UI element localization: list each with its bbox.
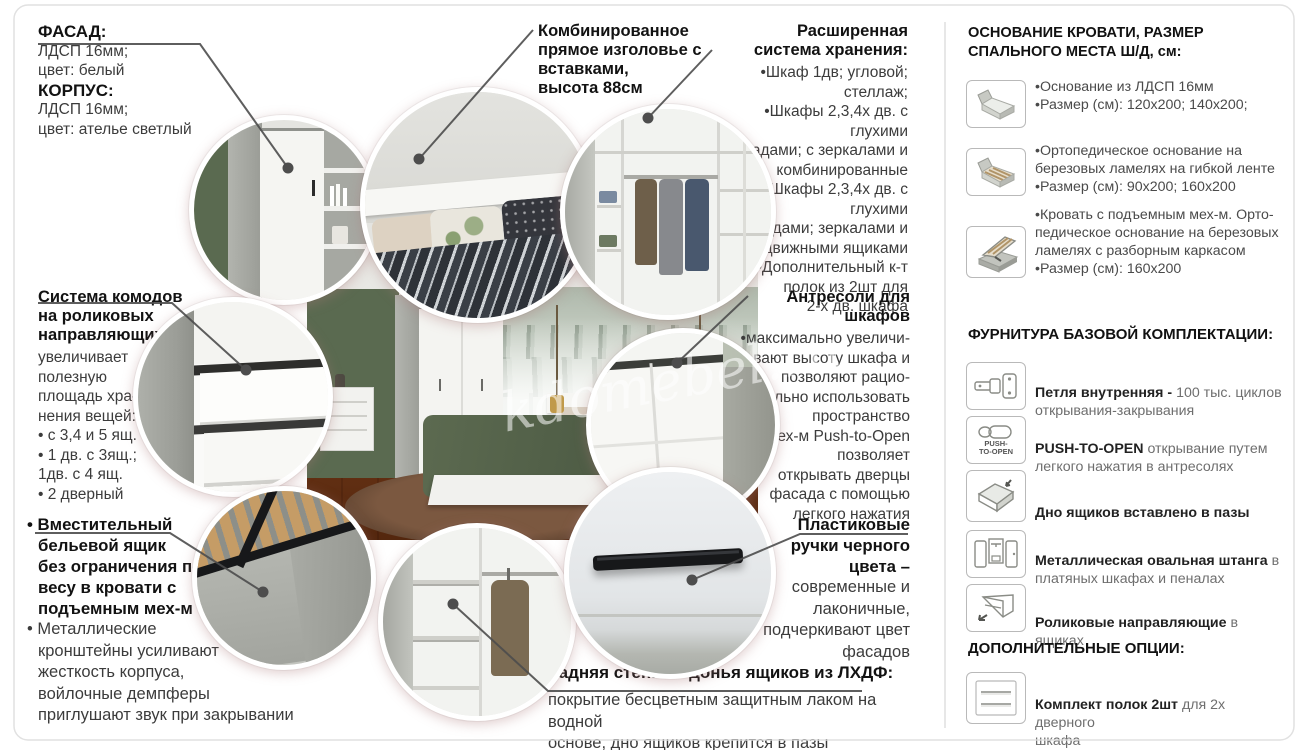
fittings-heading: ФУРНИТУРА БАЗОВОЙ КОМПЛЕКТАЦИИ:: [968, 326, 1278, 345]
bed-lift-icon: [966, 226, 1026, 278]
drawer-bottom-text: Дно ящиков вставлено в пазы: [1035, 486, 1287, 522]
circle-black-handle: [564, 467, 776, 679]
back-panel-note: Задняя стенка и донья ящиков из ЛХДФ: по…: [548, 662, 928, 750]
bed-slats-text: •Ортопедическое основание на березовых л…: [1035, 142, 1287, 196]
photo-pendant-lamp: [550, 395, 564, 413]
storage-heading: Расширенная система хранения:: [704, 22, 908, 60]
roller-guides-bold: Роликовые направляющие: [1035, 615, 1230, 631]
options-heading: ДОПОЛНИТЕЛЬНЫЕ ОПЦИИ:: [968, 640, 1278, 659]
push-to-open-bold: PUSH-TO-OPEN: [1035, 441, 1147, 457]
drawer-bottom-bold: Дно ящиков вставлено в пазы: [1035, 505, 1250, 521]
bed-base-heading: ОСНОВАНИЕ КРОВАТИ, РАЗМЕР СПАЛЬНОГО МЕСТ…: [968, 24, 1268, 61]
circle-drawers-open: [133, 297, 333, 497]
bed-base-text: •Основание из ЛДСП 16мм •Размер (см): 12…: [1035, 78, 1287, 114]
drawer-bottom-icon: [966, 470, 1026, 522]
headboard-note: Комбинированное прямое изголовье с встав…: [538, 22, 718, 98]
push-to-open-icon: PUSH- TO-OPEN: [966, 416, 1026, 464]
wardrobe-rail-icon: [966, 530, 1026, 578]
product-infographic-page: ФАСАД: ЛДСП 16мм; цвет: белый КОРПУС: ЛД…: [0, 0, 1302, 750]
bed-lift-text: •Кровать с подъемным мех-м. Орто- педиче…: [1035, 206, 1293, 278]
back-panel-body: покрытие бесцветным защитным лаком на во…: [548, 690, 928, 750]
roller-guides-icon: [966, 584, 1026, 632]
wardrobe-rail-text: Металлическая овальная штанга в платяных…: [1035, 534, 1287, 588]
shelf-set-bold: Комплект полок 2шт: [1035, 697, 1182, 713]
circle-open-wardrobe: [560, 104, 776, 320]
shelf-set-text: Комплект полок 2шт для 2х дверного шкафа: [1035, 678, 1287, 750]
shelf-set-icon: [966, 672, 1026, 724]
bed-base-icon: [966, 80, 1026, 128]
circle-wardrobe-fronts: [189, 115, 379, 305]
hinge-icon: [966, 362, 1026, 410]
hinge-text: Петля внутренняя - 100 тыс. циклов откры…: [1035, 366, 1287, 420]
push-to-open-icon-label: PUSH- TO-OPEN: [979, 440, 1013, 456]
bed-slats-icon: [966, 148, 1026, 196]
korpus-heading: КОРПУС:: [38, 81, 248, 101]
circle-wardrobe-interior: [378, 523, 576, 721]
facade-heading: ФАСАД:: [38, 22, 248, 42]
photo-pendant-cord: [556, 305, 558, 397]
hinge-bold: Петля внутренняя -: [1035, 385, 1176, 401]
facade-body: ЛДСП 16мм; цвет: белый: [38, 42, 248, 81]
push-to-open-text: PUSH-TO-OPEN открывание путем легкого на…: [1035, 422, 1287, 476]
photo-concrete-pillar: [395, 295, 421, 491]
circle-linen-box: [192, 486, 376, 670]
right-info-panel: ОСНОВАНИЕ КРОВАТИ, РАЗМЕР СПАЛЬНОГО МЕСТ…: [955, 0, 1295, 750]
wardrobe-rail-bold: Металлическая овальная штанга: [1035, 553, 1272, 569]
